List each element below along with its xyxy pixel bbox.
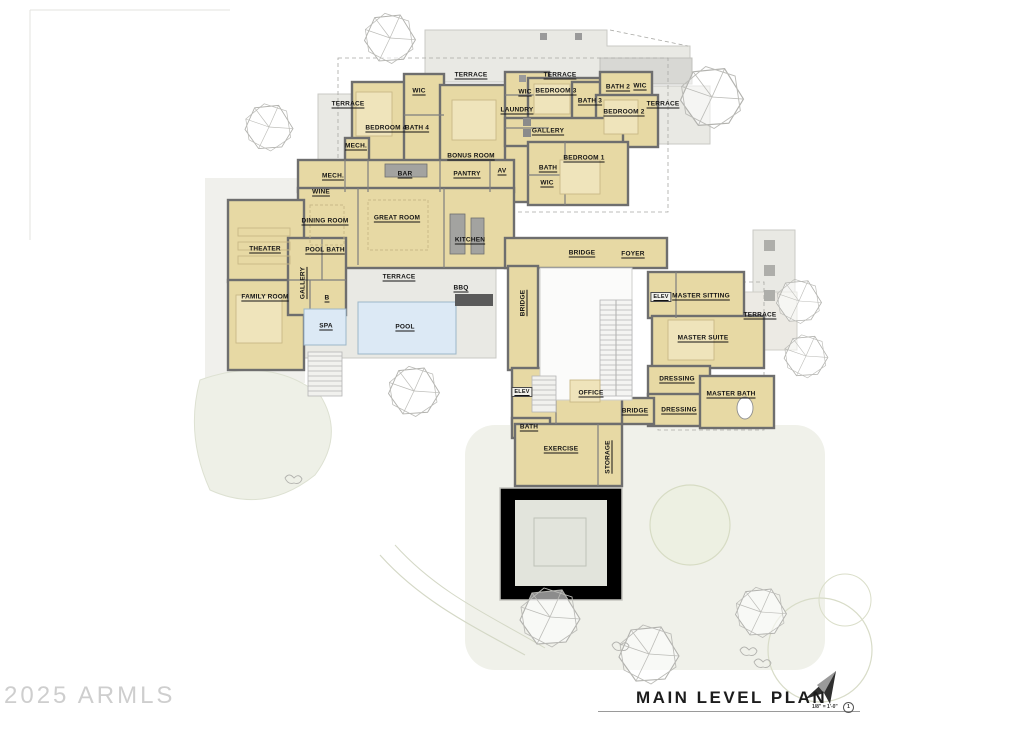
room-label-terrace-master: TERRACE [744,312,777,319]
room-label-wic-bed1: WIC [540,180,553,187]
room-label-bridge-office: BRIDGE [622,408,648,415]
pool-deck-stair [308,352,342,396]
room-label-terrace-top-right: TERRACE [544,72,577,79]
room-label-terrace-pool: TERRACE [383,274,416,281]
room-label-terrace-east: TERRACE [647,101,680,108]
room-label-gallery-lower: GALLERY [300,267,307,299]
room-label-bath-office: BATH [520,424,538,431]
room-label-bath-bed1: BATH [539,165,557,172]
room-label-powder: B [325,295,330,302]
detail-number-bubble: 1 [843,702,854,713]
room-label-dressing-a: DRESSING [659,376,695,383]
room-label-bridge-main: BRIDGE [569,250,595,257]
room-label-bar: BAR [398,171,413,178]
tree-icon [365,13,416,63]
room-label-mech-main: MECH. [322,173,344,180]
room-label-bedroom1: BEDROOM 1 [563,155,604,162]
room-label-wic-bed3: WIC [518,89,531,96]
room-label-terrace-top-center: TERRACE [455,72,488,79]
page-title: MAIN LEVEL PLAN [636,688,827,708]
room-label-bonus-room: BONUS ROOM [447,153,495,160]
room-label-bedroom2: BEDROOM 2 [603,109,644,116]
title-underline [598,711,860,712]
room-label-bedroom3: BEDROOM 3 [535,88,576,95]
room-label-wine: WINE [312,189,330,196]
room-label-master-suite: MASTER SUITE [678,335,729,342]
room-label-bedroom4: BEDROOM 4 [365,125,406,132]
room-label-exercise: EXERCISE [544,446,578,453]
room-label-gallery-upper: GALLERY [532,128,564,135]
room-label-elev-master: ELEV [650,292,671,302]
room-label-kitchen: KITCHEN [455,237,485,244]
room-label-bath3: BATH 3 [578,98,602,105]
room-label-dressing-b: DRESSING [661,407,697,414]
room-label-dining-room: DINING ROOM [302,218,349,225]
room-label-bath2: BATH 2 [606,84,630,91]
room-label-elev-office: ELEV [511,387,532,397]
room-label-bridge-west: BRIDGE [520,290,527,316]
room-label-mech-upper: MECH. [345,143,367,150]
room-label-bbq: BBQ [453,285,468,292]
room-label-av: AV [498,168,507,175]
room-label-master-sitting: MASTER SITTING [672,293,730,300]
room-label-master-bath: MASTER BATH [706,391,755,398]
room-label-pantry: PANTRY [453,171,480,178]
room-label-great-room: GREAT ROOM [374,215,420,222]
floor-plan-page: TERRACE WIC BEDROOM 4 BATH 4 MECH. TERRA… [0,0,1024,731]
room-label-storage: STORAGE [605,440,612,473]
room-label-office: OFFICE [578,390,603,397]
tree-icon [245,104,293,151]
office-stair [532,376,556,412]
room-label-pool-bath: POOL BATH [305,247,344,254]
room-label-theater: THEATER [249,246,281,253]
room-label-laundry: LAUNDRY [501,107,534,114]
room-label-spa: SPA [319,323,332,330]
tree-icon [389,366,440,416]
room-label-family-room: FAMILY ROOM [241,294,288,301]
room-label-terrace-nw: TERRACE [332,101,365,108]
scale-label: 1/8" = 1'-0" [812,704,838,710]
room-label-wic-bed2: WIC [633,83,646,90]
room-label-foyer: FOYER [621,251,644,258]
watermark-text: 2025 ARMLS [4,682,175,710]
room-label-bath4: BATH 4 [405,125,429,132]
room-label-pool: POOL [395,324,414,331]
room-label-wic-bed4: WIC [412,88,425,95]
